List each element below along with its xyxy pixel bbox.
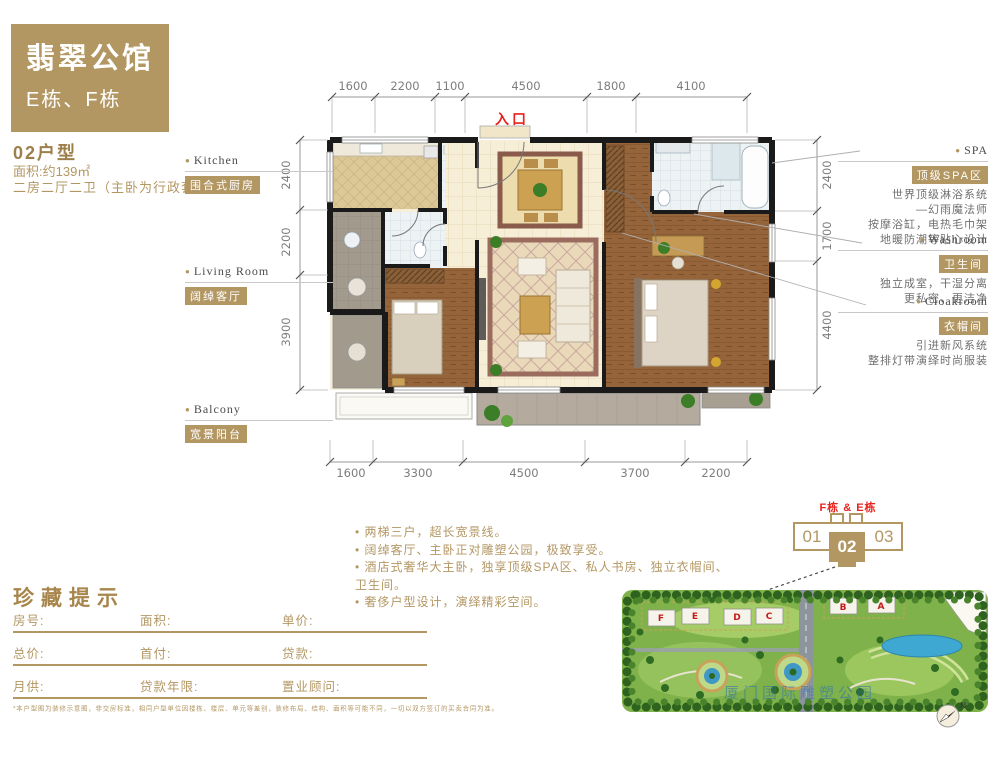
- project-title: 翡翠公馆: [26, 45, 169, 74]
- callout-kitchen-en: Kitchen: [185, 153, 333, 172]
- dining-set: [500, 154, 580, 226]
- callout-balcony-tag: 宽景阳台: [185, 425, 247, 443]
- field-down-payment: 首付:: [140, 643, 171, 662]
- callout-spa-en: SPA: [838, 143, 988, 162]
- site-building-b: B: [840, 603, 847, 613]
- brand-block: 翡翠公馆 E栋、F栋: [11, 24, 169, 132]
- site-building-a: A: [878, 602, 885, 612]
- dim-right-3: 4400: [820, 310, 834, 339]
- form-heading: 珍藏提示: [13, 582, 125, 612]
- dim-left-2: 2200: [279, 227, 293, 256]
- callout-spa-tag: 顶级SPA区: [912, 166, 988, 184]
- site-building-c: C: [766, 612, 773, 622]
- callout-kitchen: Kitchen 围合式厨房: [185, 153, 333, 194]
- building-key-unit-02: 02: [829, 537, 865, 557]
- utility-area: [333, 211, 381, 311]
- selling-point: 阔绰客厅、主卧正对雕塑公园，极致享受。: [355, 542, 735, 560]
- site-building-f: F: [658, 614, 664, 624]
- field-unit-price: 单价:: [282, 610, 313, 629]
- field-room-number: 房号:: [13, 610, 44, 629]
- dim-bottom-4: 3700: [620, 466, 649, 480]
- dim-top-3: 1100: [435, 79, 464, 93]
- dim-bottom-1: 1600: [336, 466, 365, 480]
- field-monthly-payment: 月供:: [13, 676, 44, 695]
- dim-top-5: 1800: [596, 79, 625, 93]
- dim-bottom-2: 3300: [403, 466, 432, 480]
- selling-point: 奢侈户型设计，演绎精彩空间。: [355, 594, 735, 612]
- callout-kitchen-tag: 围合式厨房: [185, 176, 260, 194]
- site-building-e: E: [692, 612, 698, 622]
- kitchen-area: [333, 141, 440, 209]
- building-key-unit-03: 03: [866, 527, 902, 547]
- disclaimer-text: *本户型图为装修示意图，非交房标准，相同户型单位因楼栋、楼层、单元等差别，装修布…: [13, 704, 589, 713]
- dim-top-6: 4100: [676, 79, 705, 93]
- entrance-label: 入口: [486, 109, 538, 129]
- form-row-2: 总价: 首付: 贷款:: [13, 645, 427, 666]
- dim-right-1: 2400: [820, 160, 834, 189]
- callout-living: Living Room 阔绰客厅: [185, 264, 333, 305]
- selling-point: 两梯三户，超长宽景线。: [355, 524, 735, 542]
- form-row-3: 月供: 贷款年限: 置业顾问:: [13, 678, 427, 699]
- dim-bottom-3: 4500: [509, 466, 538, 480]
- building-subtitle: E栋、F栋: [26, 83, 169, 112]
- field-area: 面积:: [140, 610, 171, 629]
- callout-cloakroom-en: Cloakroom: [838, 294, 988, 313]
- form-row-1: 房号: 面积: 单价:: [13, 612, 427, 633]
- dim-left-3: 3900: [279, 317, 293, 346]
- callout-living-tag: 阔绰客厅: [185, 287, 247, 305]
- callout-washroom-en: Washroom: [838, 232, 988, 251]
- selling-points: 两梯三户，超长宽景线。 阔绰客厅、主卧正对雕塑公园，极致享受。 酒店式奢华大主卧…: [355, 524, 735, 612]
- spa-line: —幻雨魔法师: [838, 203, 988, 218]
- selling-point: 酒店式奢华大主卧，独享顶级SPA区、私人书房、独立衣帽间、卫生间。: [355, 559, 735, 594]
- callout-cloakroom-tag: 衣帽间: [939, 317, 988, 335]
- field-loan: 贷款:: [282, 643, 313, 662]
- callout-living-en: Living Room: [185, 264, 333, 283]
- dim-top-1: 1600: [338, 79, 367, 93]
- floorplan-sheet: { "colors": { "gold": "#b39763", "red": …: [0, 0, 1000, 762]
- spa-line: 世界顶级淋浴系统: [838, 188, 988, 203]
- compass-n-label: N: [960, 701, 966, 710]
- master-suite-area: [604, 141, 772, 388]
- building-key-unit-01: 01: [794, 527, 830, 547]
- callout-balcony: Balcony 宽景阳台: [185, 402, 333, 443]
- field-total-price: 总价:: [13, 643, 44, 662]
- building-key-foot: [838, 562, 856, 567]
- site-building-d: D: [733, 613, 740, 623]
- callout-balcony-en: Balcony: [185, 402, 333, 421]
- building-key-label: F栋 & E栋: [788, 499, 908, 515]
- cloakroom-line: 整排灯带演绎时尚服装: [838, 354, 988, 369]
- callout-washroom-tag: 卫生间: [939, 255, 988, 273]
- field-loan-term: 贷款年限:: [140, 676, 198, 695]
- spa-line: 按摩浴缸，电热毛巾架: [838, 218, 988, 233]
- callout-cloakroom: Cloakroom 衣帽间 引进新风系统 整排灯带演绎时尚服装: [838, 294, 988, 369]
- dim-bottom-5: 2200: [701, 466, 730, 480]
- field-consultant: 置业顾问:: [282, 676, 340, 695]
- floor-plan: [327, 126, 775, 427]
- dim-top-4: 4500: [511, 79, 540, 93]
- dim-top-2: 2200: [390, 79, 419, 93]
- site-watermark: 厦门国际雕塑公园: [724, 684, 876, 702]
- cloakroom-line: 引进新风系统: [838, 339, 988, 354]
- washroom-line: 独立成室，干湿分离: [838, 277, 988, 292]
